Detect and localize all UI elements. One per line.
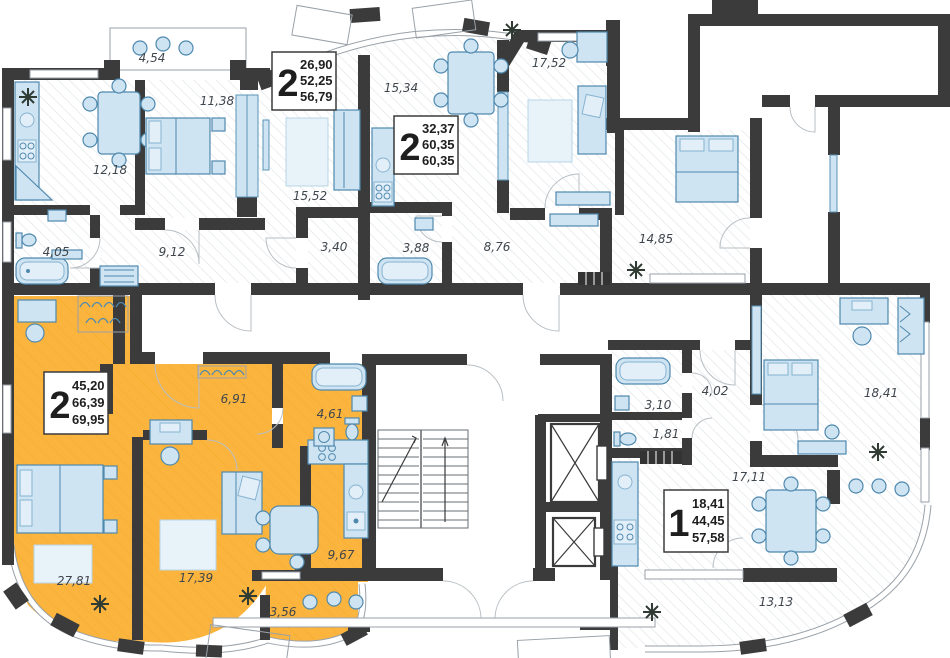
room-area-label: 15,52 [293, 189, 327, 203]
window [30, 70, 98, 78]
room-area-label: 17,11 [732, 470, 766, 484]
room-area-label: 3,88 [403, 241, 430, 255]
apartment-area-value: 18,41 [692, 496, 725, 511]
toilet-icon [345, 418, 359, 440]
room-area-label: 4,05 [43, 245, 70, 259]
apartment-rooms-count: 1 [668, 503, 689, 545]
sink-icon [615, 396, 629, 410]
window [3, 222, 11, 262]
radiator-grid-icon [640, 451, 682, 464]
balcony-chair-icon [895, 482, 909, 496]
balcony-chair-icon [327, 592, 341, 606]
apartment-rooms-count: 2 [49, 385, 70, 427]
bed-icon [764, 360, 818, 430]
room-area-label: 4,61 [317, 407, 344, 421]
dresser-icon [798, 441, 846, 454]
glazed-partition [752, 306, 761, 394]
room-area-label: 1,81 [653, 427, 680, 441]
tv-panel-icon [263, 120, 269, 170]
apartment-area-value: 60,35 [422, 137, 455, 152]
balcony-chair-icon [349, 595, 363, 609]
radiator-grid-icon [578, 272, 610, 285]
apartment-area-value: 60,35 [422, 153, 455, 168]
window [645, 570, 743, 579]
apartment-area-value: 56,79 [300, 89, 333, 104]
window [3, 108, 11, 160]
balcony-chair-icon [872, 479, 886, 493]
bed-icon [676, 136, 738, 202]
rug [160, 520, 216, 570]
room-area-label: 18,41 [864, 386, 898, 400]
room-area-label: 6,91 [221, 392, 248, 406]
washer-icon [314, 428, 334, 446]
balcony-chair-icon [179, 41, 193, 55]
room-area-label: 3,56 [270, 605, 297, 619]
kitchen-counter-icon [372, 128, 394, 206]
bed-icon [17, 465, 117, 533]
room-area-label: 9,67 [328, 548, 355, 562]
sink-icon [352, 396, 367, 411]
room-area-label: 9,12 [159, 245, 186, 259]
window [3, 385, 11, 433]
bench-icon [550, 214, 598, 226]
room-area-label: 17,39 [179, 571, 213, 585]
bathtub-icon [616, 358, 670, 384]
apartment-area-value: 26,90 [300, 57, 333, 72]
sofa-icon [334, 110, 360, 190]
window [921, 448, 929, 502]
apartment-area-value: 32,37 [422, 121, 455, 136]
apartment-info-box-top-middle[interactable]: 2 32,37 60,35 60,35 [394, 116, 458, 174]
apartment-rooms-count: 2 [399, 127, 420, 169]
toilet-icon [614, 432, 636, 446]
apartment-area-value: 52,25 [300, 73, 333, 88]
balcony [110, 28, 246, 70]
room-area-label: 3,40 [321, 240, 348, 254]
room-area-label: 3,10 [645, 398, 672, 412]
bathtub-icon [312, 364, 366, 390]
apartment-info-box-right[interactable]: 1 18,41 44,45 57,58 [664, 490, 728, 552]
apartment-area-value: 44,45 [692, 513, 725, 528]
room-area-label: 12,18 [93, 163, 128, 177]
apartment-area-value: 57,58 [692, 530, 725, 545]
rug [286, 118, 328, 186]
room-area-label: 4,02 [702, 384, 729, 398]
corridor-window [213, 618, 655, 627]
apartment-area-value: 45,20 [72, 378, 105, 393]
apartment-info-box-bottom-left[interactable]: 2 45,20 66,39 69,95 [44, 372, 108, 434]
room-area-label: 8,76 [484, 240, 511, 254]
chair-icon [825, 425, 839, 439]
stairs[interactable] [378, 430, 468, 528]
apartment-rooms-count: 2 [277, 63, 298, 105]
stair-core [378, 424, 607, 566]
floor-plan: 4,54 11,38 12,18 4,05 9,12 15,52 3,40 15… [0, 0, 950, 658]
room-area-label: 15,34 [384, 81, 418, 95]
room-area-label: 14,85 [639, 232, 673, 246]
apartment-area-value: 69,95 [72, 412, 105, 427]
window [262, 572, 300, 579]
window [650, 274, 745, 283]
kitchen-counter-icon [612, 462, 638, 566]
bathtub-icon [378, 258, 432, 284]
cabinet-icon [100, 266, 138, 286]
sofa-icon [578, 86, 606, 154]
bathtub-icon [16, 258, 68, 284]
room-area-label: 13,13 [759, 595, 793, 609]
sofa-icon [222, 472, 262, 534]
room-area-label: 27,81 [57, 574, 91, 588]
sink-icon [415, 218, 433, 230]
room-area-label: 11,38 [200, 94, 235, 108]
sink-icon [48, 210, 66, 221]
bench-icon [556, 192, 610, 205]
room-area-label: 17,52 [532, 56, 566, 70]
glazed-partition [830, 155, 837, 212]
balcony-chair-icon [303, 595, 317, 609]
wardrobe-icon [898, 298, 924, 354]
apartment-area-value: 66,39 [72, 395, 105, 410]
elevator-1-icon [551, 424, 607, 502]
elevator-2-icon [553, 518, 604, 566]
rug [528, 100, 572, 162]
balcony-chair-icon [156, 37, 170, 51]
apartment-info-box-top-left[interactable]: 2 26,90 52,25 56,79 [272, 52, 336, 110]
balcony-chair-icon [849, 479, 863, 493]
room-area-label: 4,54 [139, 51, 166, 65]
